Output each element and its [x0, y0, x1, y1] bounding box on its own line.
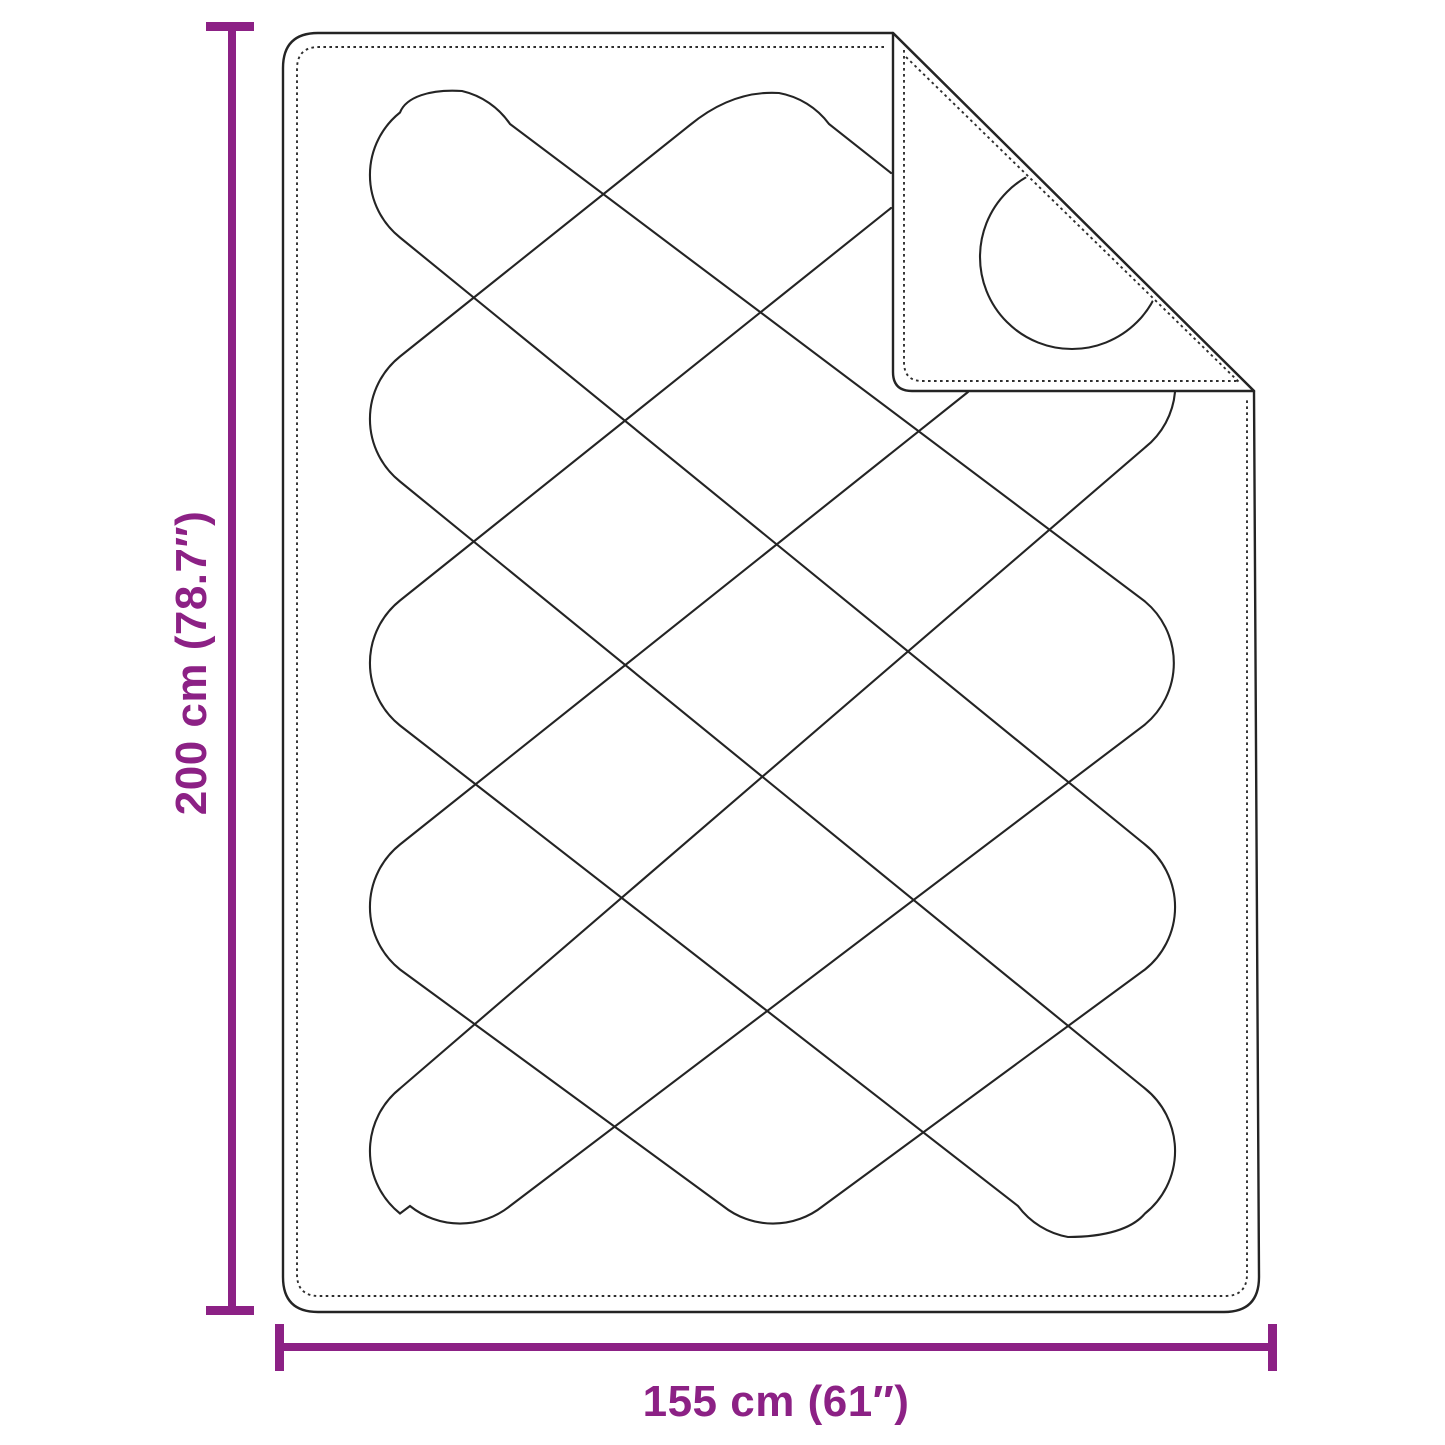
width-dimension-line: [275, 1343, 1277, 1351]
product-dimension-diagram: 200 cm (78.7″) 155 cm (61″): [0, 0, 1445, 1445]
height-dimension-cap-bottom: [206, 1306, 254, 1315]
blanket-outline: [283, 33, 1259, 1312]
fold-flap-shape: [893, 33, 1254, 391]
blanket-body: [283, 33, 1259, 1312]
fold-flap: [893, 33, 1254, 391]
width-dimension-cap-left: [275, 1324, 284, 1371]
height-dimension-cap-top: [206, 22, 254, 31]
blanket-illustration: [0, 0, 1445, 1445]
width-dimension-label: 155 cm (61″): [643, 1380, 910, 1424]
height-dimension-label: 200 cm (78.7″): [170, 511, 214, 815]
height-dimension-line: [228, 26, 236, 1309]
width-dimension-cap-right: [1268, 1324, 1277, 1371]
